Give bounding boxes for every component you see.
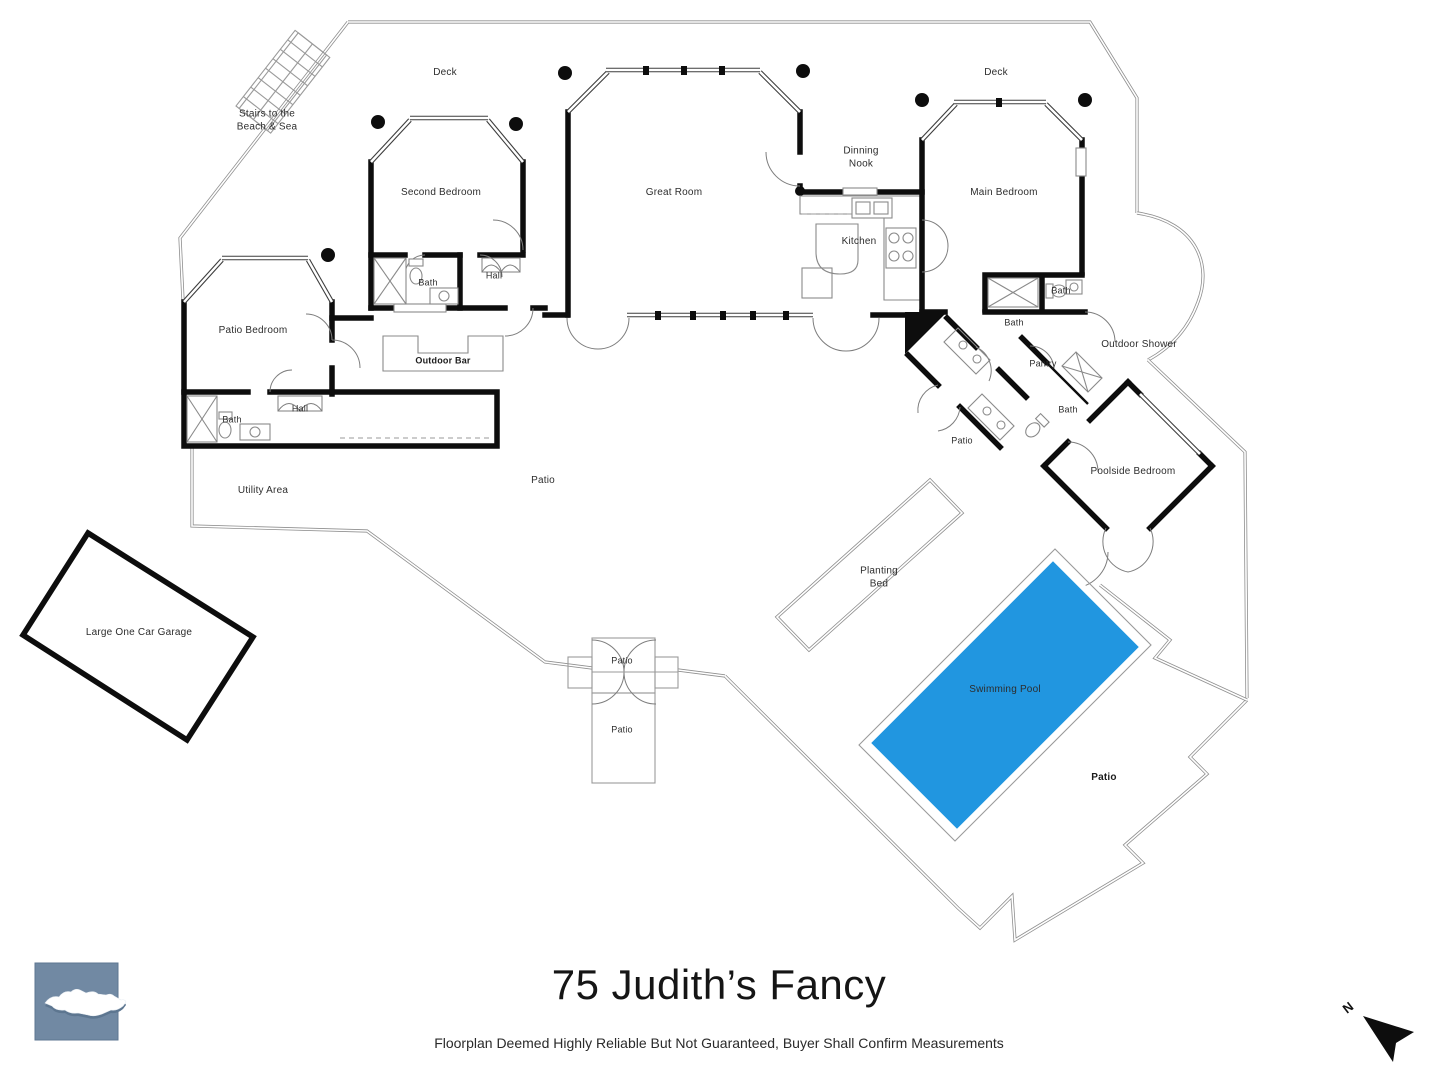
label-bath-main-upper: Bath	[1051, 285, 1070, 296]
label-second-bedroom: Second Bedroom	[401, 187, 481, 200]
label-dinning-nook: Dinning Nook	[843, 146, 878, 171]
label-pantry: Pantry	[1029, 358, 1056, 369]
label-stairs-to-beach: Stairs to the Beach & Sea	[237, 109, 298, 134]
label-bath-patio: Bath	[222, 414, 241, 425]
label-patio-main: Patio	[531, 475, 555, 488]
label-patio-gate-lower: Patio	[611, 724, 633, 735]
label-deck-right: Deck	[984, 67, 1008, 80]
label-utility-area: Utility Area	[238, 485, 288, 498]
compass-n-label: N	[1340, 999, 1357, 1017]
label-hall-second: Hall	[486, 270, 502, 281]
label-outdoor-bar: Outdoor Bar	[415, 355, 470, 366]
label-bath-main: Bath	[1004, 317, 1023, 328]
label-patio-bedroom: Patio Bedroom	[219, 325, 288, 338]
floorplan-page: N DeckStairs to the Beach & SeaSecond Be…	[0, 0, 1440, 1080]
main-bedroom-suite	[922, 98, 1115, 342]
label-bath-second: Bath	[418, 277, 437, 288]
deck-columns	[321, 64, 1092, 262]
floorplan-drawing: N	[0, 0, 1440, 1080]
label-great-room: Great Room	[646, 187, 702, 200]
label-patio-pool: Patio	[1091, 772, 1116, 785]
label-outdoor-shower: Outdoor Shower	[1101, 339, 1177, 352]
label-swimming-pool: Swimming Pool	[969, 684, 1041, 697]
island-logo	[35, 963, 126, 1040]
plan-disclaimer: Floorplan Deemed Highly Reliable But Not…	[434, 1035, 1004, 1051]
north-arrow-icon: N	[1340, 999, 1414, 1062]
second-bedroom-suite	[371, 118, 545, 336]
label-main-bedroom: Main Bedroom	[970, 187, 1037, 200]
label-bath-poolside: Bath	[1058, 404, 1077, 415]
label-kitchen: Kitchen	[842, 236, 877, 249]
label-garage: Large One Car Garage	[86, 627, 192, 640]
plan-title: 75 Judith’s Fancy	[552, 961, 887, 1009]
label-planting-bed: Planting Bed	[860, 566, 898, 591]
label-patio-gate-upper: Patio	[611, 655, 633, 666]
label-deck-left: Deck	[433, 67, 457, 80]
label-patio-corridor: Patio	[951, 435, 973, 446]
label-poolside-bedroom: Poolside Bedroom	[1091, 466, 1176, 479]
label-hall-patio: Hall	[292, 403, 308, 414]
